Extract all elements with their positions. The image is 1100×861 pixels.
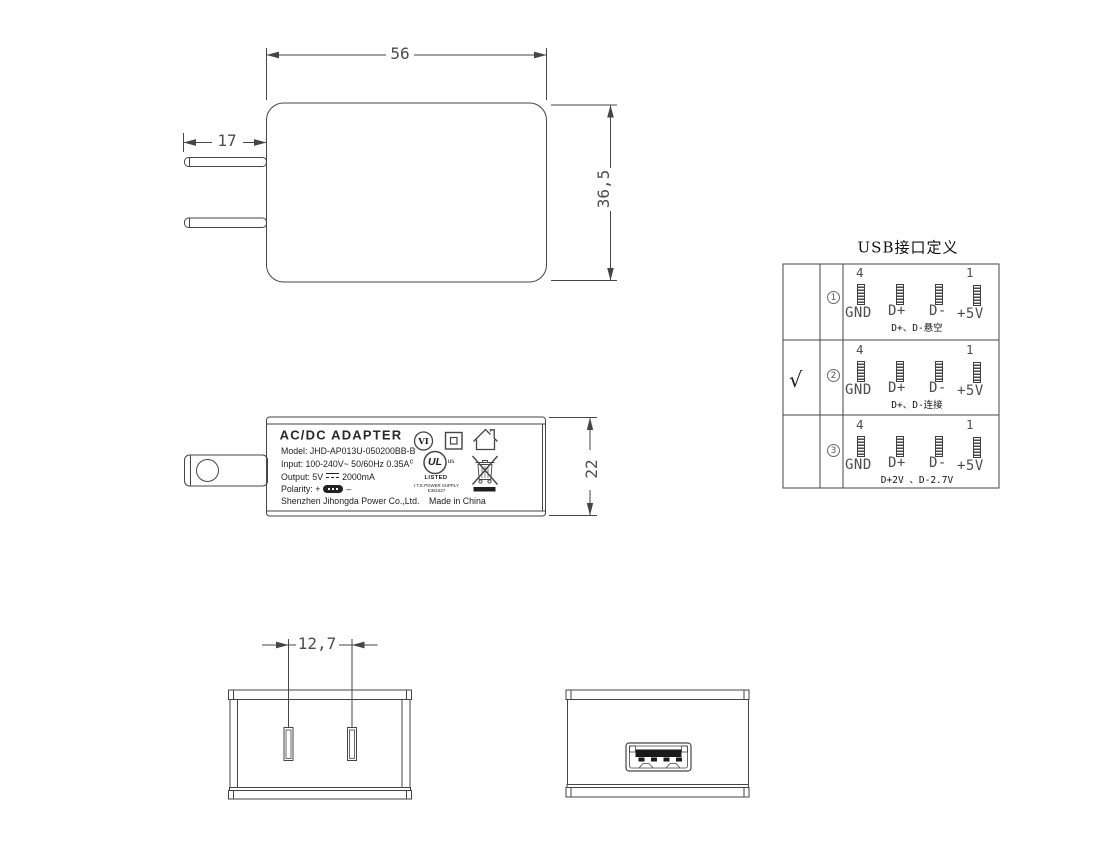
row2-number: 2 [827, 369, 840, 382]
usb-table-row-1: 1 4 1 GND D+ D- +5V D+、D-悬空 [783, 264, 999, 340]
label-polarity: Polarity: +– [281, 484, 351, 494]
label-output-suffix: 2000mA [342, 472, 375, 482]
pin4-label: 4 [856, 344, 864, 357]
pin-contact-icon [896, 284, 904, 305]
label-polarity-text: Polarity: [281, 484, 313, 494]
pin-gnd: GND [845, 383, 872, 397]
vi-mark-text: VI [418, 437, 429, 446]
label-model: Model: JHD-AP013U-050200BB-B [281, 447, 415, 456]
pin-contact-icon [973, 362, 981, 383]
pin-contact-icon [857, 436, 865, 457]
pin-contact-icon [935, 361, 943, 382]
ul-c-text: c [410, 458, 414, 465]
pin-5v: +5V [957, 307, 984, 321]
row1-number: 1 [827, 291, 840, 304]
ul-us-text: us [448, 458, 455, 465]
ul-mark-text: UL [428, 457, 442, 468]
usb-plug-symbol-icon [323, 485, 343, 493]
pin4-label: 4 [856, 267, 864, 280]
front-view-outline [185, 103, 547, 282]
pin-contact-icon [857, 284, 865, 305]
ul-file-number: E361627 [428, 488, 446, 492]
label-origin: Made in China [429, 497, 486, 506]
row1-note: D+、D-悬空 [847, 324, 987, 334]
pin-contact-icon [935, 436, 943, 457]
usb-table-row-2: √ 2 4 1 GND D+ D- +5V D+、D-连接 [783, 340, 999, 416]
pin-dplus: D+ [888, 381, 906, 395]
dim-prong-17: 17 [217, 133, 236, 149]
bottom-front-outline [229, 690, 412, 799]
row2-note: D+、D-连接 [847, 401, 987, 411]
indoor-use-house-icon [474, 430, 498, 450]
polarity-minus: – [346, 484, 351, 494]
dim-thickness-22: 22 [584, 459, 600, 478]
label-input: Input: 100-240V~ 50/60Hz 0.35A [281, 460, 409, 469]
technical-drawing-canvas: 56 36,5 17 22 12,7 AC/DC ADAPTER Model: … [0, 0, 1100, 861]
dc-symbol-icon [326, 472, 339, 480]
pin1-label: 1 [966, 344, 974, 357]
dim-height-36-5: 36,5 [596, 170, 612, 209]
pin4-label: 4 [856, 419, 864, 432]
usb-table-row-3: 3 4 1 GND D+ D- +5V D+2V 、D-2.7V [783, 415, 999, 491]
ul-listed-text: LISTED [424, 476, 447, 482]
label-company: Shenzhen Jihongda Power Co.,Ltd. [281, 497, 419, 506]
row3-number: 3 [827, 444, 840, 457]
pin-dplus: D+ [888, 456, 906, 470]
usb-port-icon [626, 743, 691, 771]
pin-contact-icon [896, 361, 904, 382]
front-view-dimensions [184, 48, 618, 281]
pin-contact-icon [973, 437, 981, 458]
pin1-label: 1 [966, 419, 974, 432]
class2-double-square-icon [446, 433, 463, 450]
label-title: AC/DC ADAPTER [280, 429, 403, 442]
usb-table-title: USB接口定义 [858, 241, 959, 256]
dim-pin-pitch-12-7: 12,7 [298, 636, 337, 652]
polarity-plus: + [315, 484, 320, 494]
pin-dminus: D- [929, 304, 947, 318]
pin-5v: +5V [957, 384, 984, 398]
label-output-prefix: Output: 5V [281, 472, 323, 482]
pin1-label: 1 [966, 267, 974, 280]
weee-bin-icon [473, 456, 498, 492]
pin-5v: +5V [957, 459, 984, 473]
row3-note: D+2V 、D-2.7V [847, 476, 987, 486]
pin-dminus: D- [929, 381, 947, 395]
pin-dminus: D- [929, 456, 947, 470]
pin-contact-icon [935, 284, 943, 305]
pin-gnd: GND [845, 458, 872, 472]
dim-width-56: 56 [390, 46, 409, 62]
pin-dplus: D+ [888, 304, 906, 318]
pin-contact-icon [896, 436, 904, 457]
pin-gnd: GND [845, 306, 872, 320]
label-output: Output: 5V2000mA [281, 472, 375, 482]
pin-contact-icon [857, 361, 865, 382]
pin-contact-icon [973, 285, 981, 306]
row2-check: √ [789, 368, 802, 392]
